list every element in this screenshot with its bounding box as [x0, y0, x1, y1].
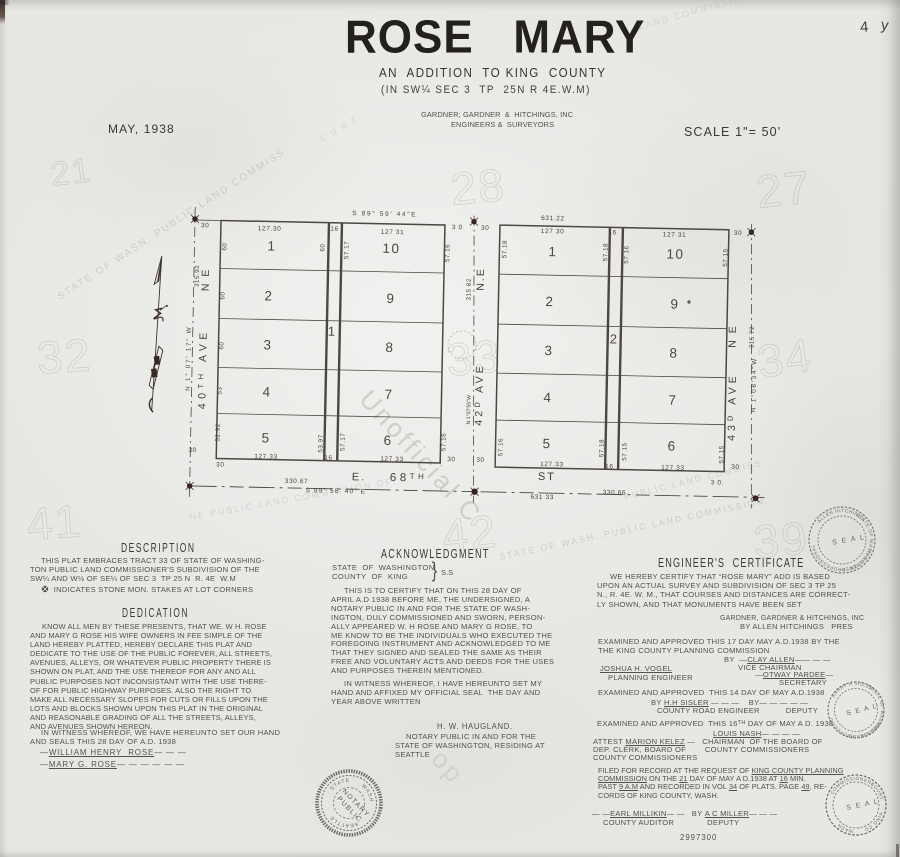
svg-text:S E A L: S E A L [832, 534, 866, 547]
svg-text:S E A L: S E A L [846, 798, 880, 812]
svg-text:WASH: WASH [836, 820, 855, 837]
svg-text:S E A L: S E A L [846, 703, 879, 718]
